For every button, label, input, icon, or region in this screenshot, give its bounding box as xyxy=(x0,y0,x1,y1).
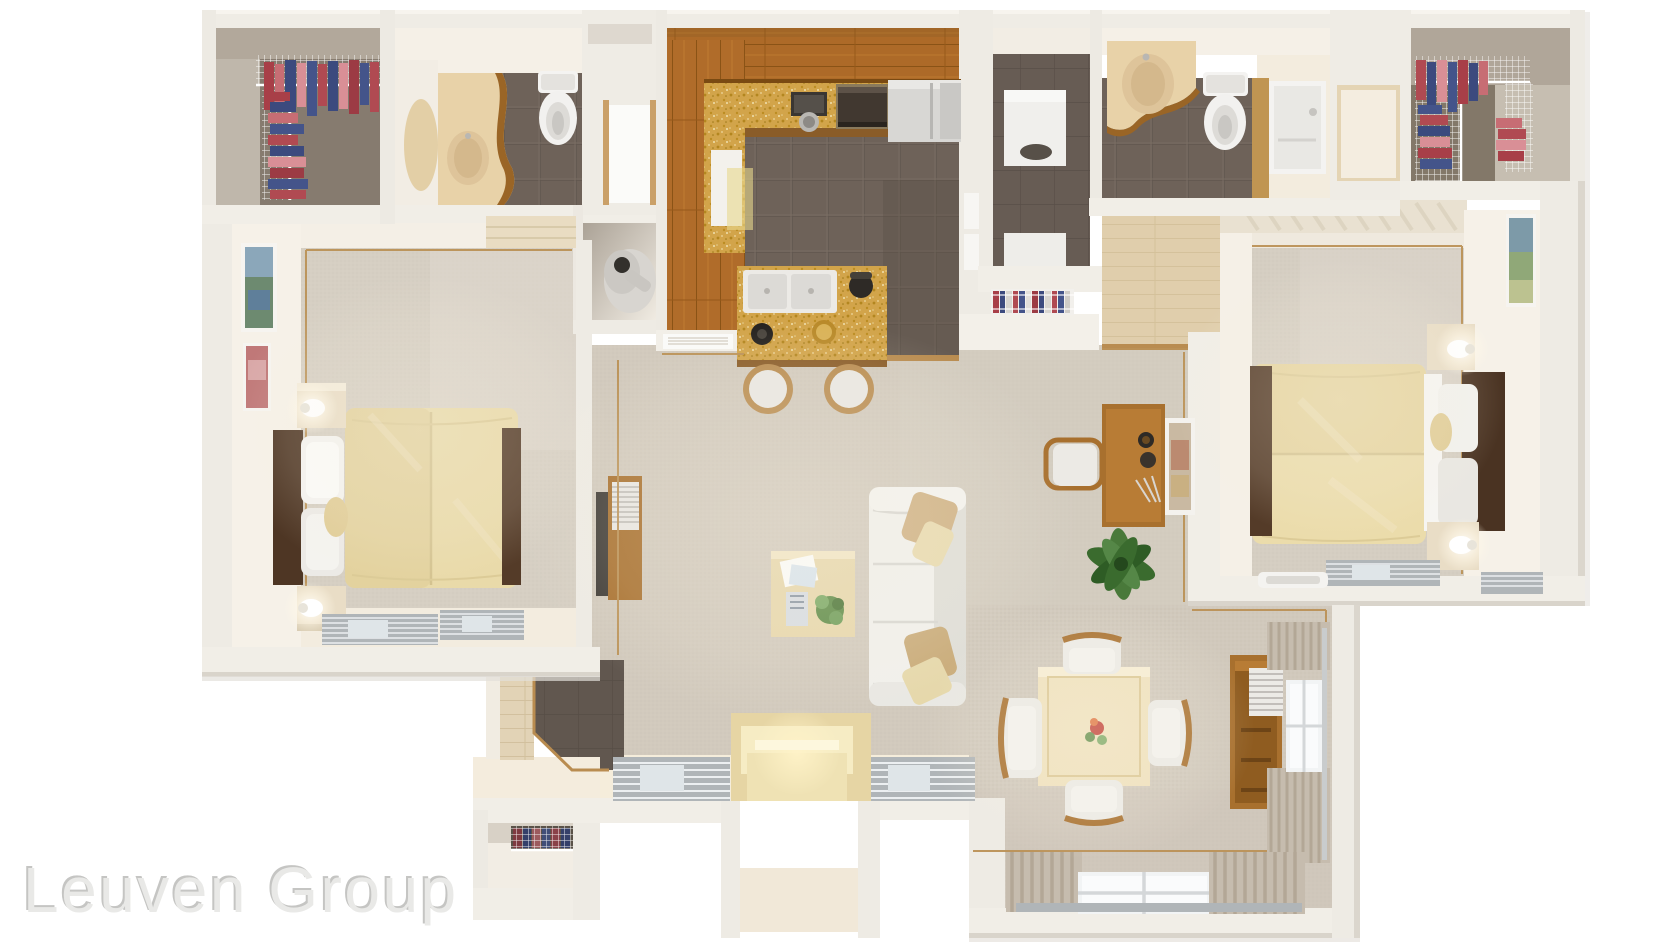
svg-text:Leuven Group: Leuven Group xyxy=(23,854,459,926)
